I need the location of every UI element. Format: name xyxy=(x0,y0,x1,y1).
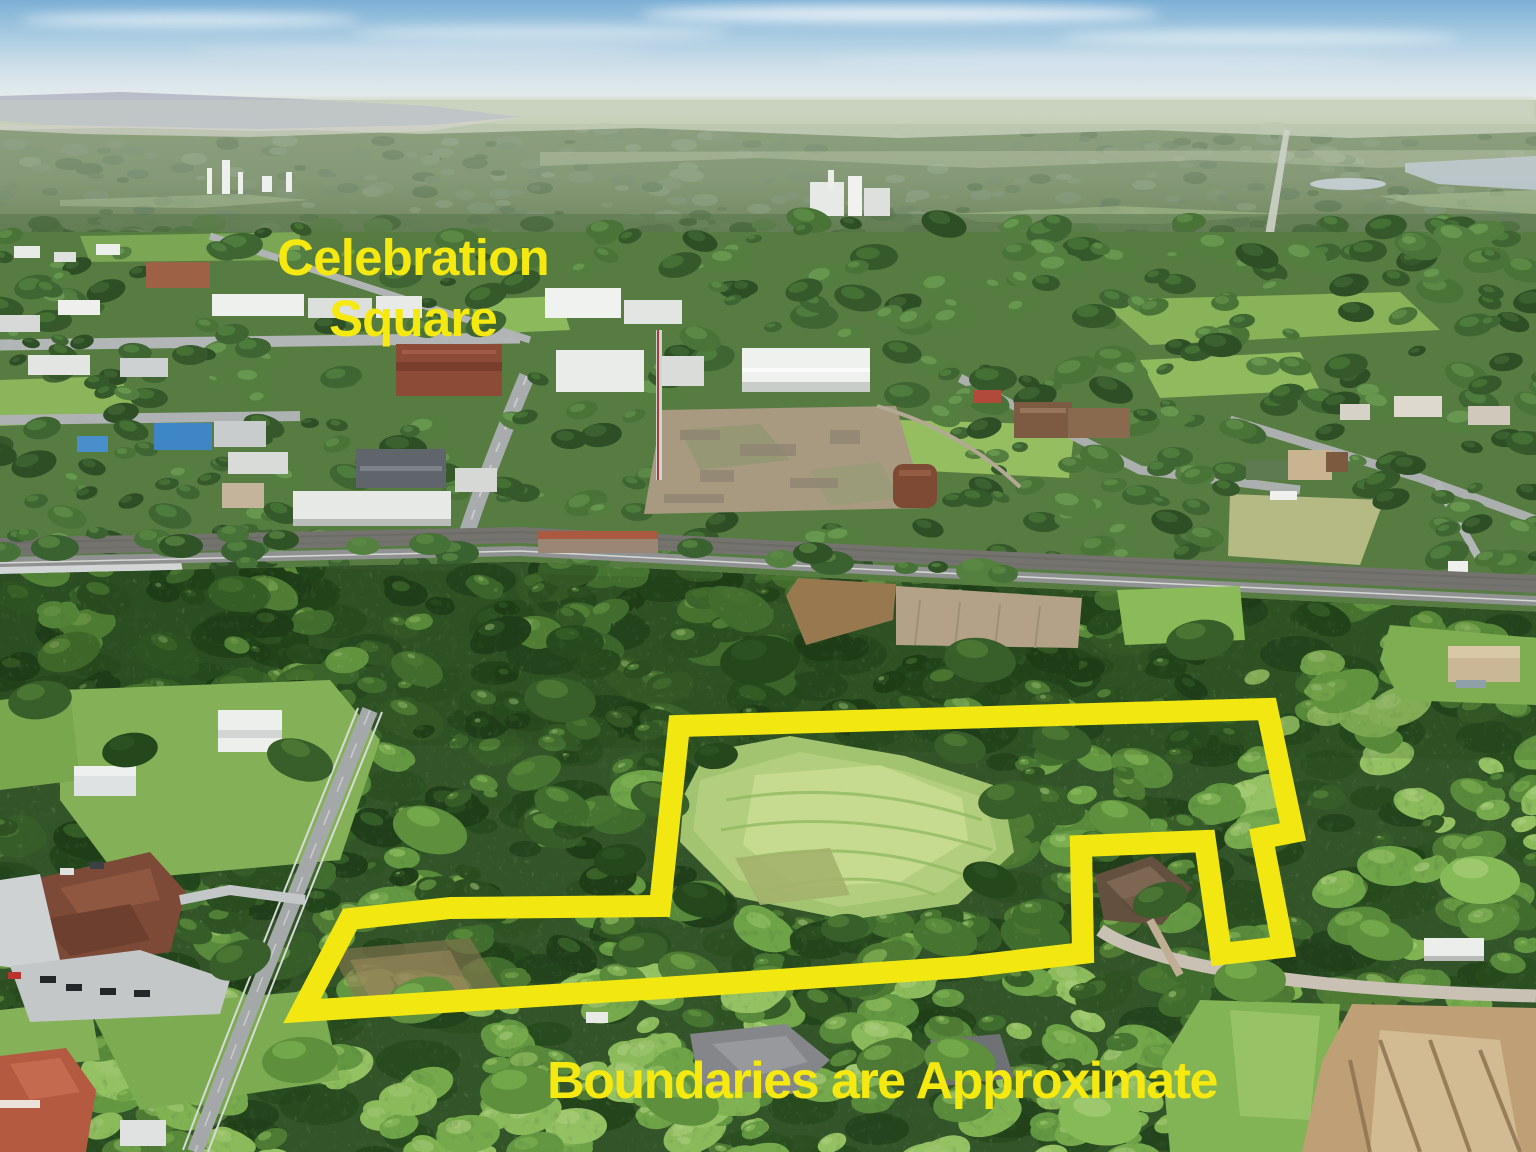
svg-text:Square: Square xyxy=(329,290,497,347)
svg-text:Boundaries are Approximate: Boundaries are Approximate xyxy=(547,1052,1218,1110)
svg-text:Celebration: Celebration xyxy=(277,229,549,286)
